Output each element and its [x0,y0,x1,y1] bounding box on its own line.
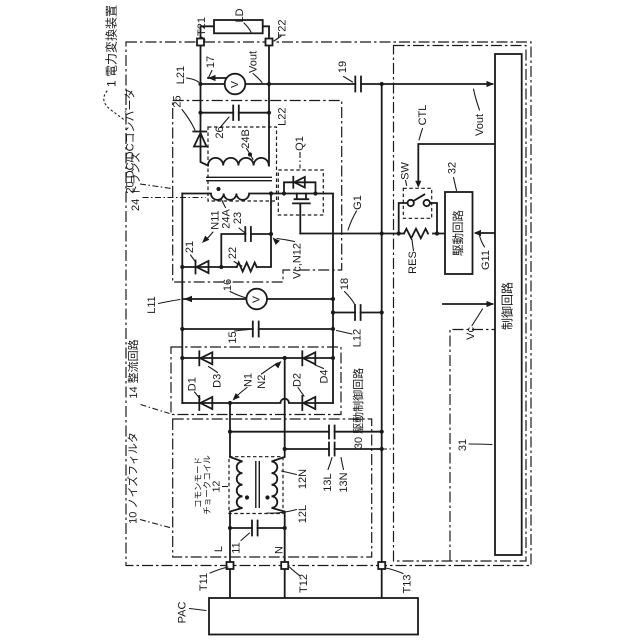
label-ctl: CTL [417,105,429,126]
vc-input-arrow [487,301,494,307]
label-21: 21 [184,241,196,253]
capacitor-19 [355,77,361,92]
switch-sw [408,195,430,207]
label-17: 17 [205,56,217,68]
label-vc-right: Vc [465,326,477,339]
terminal-t11 [227,562,234,569]
label-d2: D2 [292,373,304,387]
label-n2: N2 [256,375,268,389]
label-line-l: L [213,546,225,552]
label-drive-circuit: 駆動回路 [451,210,465,256]
voltmeter-16: V [246,289,267,310]
label-transformer: 24 トランス [130,152,142,211]
line-n-rail [269,358,285,613]
label-g11: G11 [480,250,492,270]
capacitor-13n [329,443,335,456]
component-dashed-boxes [208,127,432,514]
label-t11: T11 [198,573,210,591]
label-d1: D1 [187,377,199,391]
label-t12: T12 [298,574,310,593]
capacitor-18 [355,305,361,320]
label-l12: L12 [351,329,363,347]
label-t13: T13 [401,575,413,594]
voltmeter-17: V [225,74,246,95]
pac-source-box [209,598,418,635]
label-l22: L22 [276,108,288,126]
labels: 1 電力変換装置 20 DC/DCコンバータ 24 トランス 14 整流回路 1… [104,5,515,623]
label-sw: SW [399,162,411,180]
choke-core [256,461,259,508]
power-converter-schematic: V V [0,0,640,640]
terminal-t12 [281,562,288,569]
label-19: 19 [337,61,349,73]
label-16: 16 [222,279,234,291]
label-d4: D4 [318,369,330,383]
label-l11: L11 [146,296,158,314]
line-l-rail [230,403,247,613]
label-t21: T21 [196,17,208,36]
label-15: 15 [227,331,239,343]
capacitor-11 [252,521,258,536]
voltmeter-17-v: V [229,81,241,88]
res-zigzag [404,229,428,239]
label-12n: 12N [297,469,309,489]
label-line-n: N [273,546,285,554]
label-ld: LD [234,8,246,22]
label-t22: T22 [277,20,289,39]
label-18: 18 [339,278,351,290]
ctl-arrow [415,181,421,188]
label-22: 22 [227,247,239,259]
label-rectifier: 14 整流回路 [126,339,140,398]
wiring [182,26,495,613]
label-n1: N1 [242,373,254,387]
label-res: RES [407,251,419,274]
label-device: 1 電力変換装置 [104,5,119,87]
label-13l: 13L [322,473,334,491]
resistor-22 [237,263,257,272]
label-d3: D3 [212,374,224,388]
winding-24b [208,158,269,166]
label-pac: PAC [177,602,189,624]
label-drive-control: 30 駆動制御回路 [351,368,365,449]
label-choke-num: 12 [210,481,222,493]
label-23: 23 [232,212,244,224]
label-25: 25 [171,95,183,107]
patent-circuit-figure: V V [0,0,640,640]
transformer-core [206,177,272,180]
label-11: 11 [230,542,242,553]
capacitor-26 [233,106,239,121]
label-l21: L21 [175,66,187,84]
l11-arrow [184,296,192,303]
label-26: 26 [214,126,226,138]
terminals [197,39,385,570]
label-24b: 24B [240,129,252,149]
vout-input-arrow [487,81,494,87]
label-vout-right: Vout [474,114,486,136]
label-control-circuit: 制御回路 [500,282,515,330]
terminal-t13 [378,562,385,569]
label-12l: 12L [297,505,309,523]
label-13n: 13N [338,472,350,492]
label-g1: G1 [352,195,364,210]
capacitor-15 [253,322,259,337]
label-q1: Q1 [294,136,306,151]
terminal-t22 [266,39,273,46]
label-vc-n12: Vc,N12 [291,243,303,279]
capacitor-13l [329,426,335,439]
voltmeter-16-v: V [250,296,262,303]
terminal-t21 [197,39,204,46]
label-31: 31 [457,439,469,451]
label-noise-filter: 10 ノイズフィルタ [125,432,139,524]
label-24a: 24A [220,209,232,229]
label-32: 32 [446,162,458,174]
junction-dots [180,82,439,530]
label-vout-top: Vout [247,51,259,73]
mosfet-q1 [284,177,316,204]
